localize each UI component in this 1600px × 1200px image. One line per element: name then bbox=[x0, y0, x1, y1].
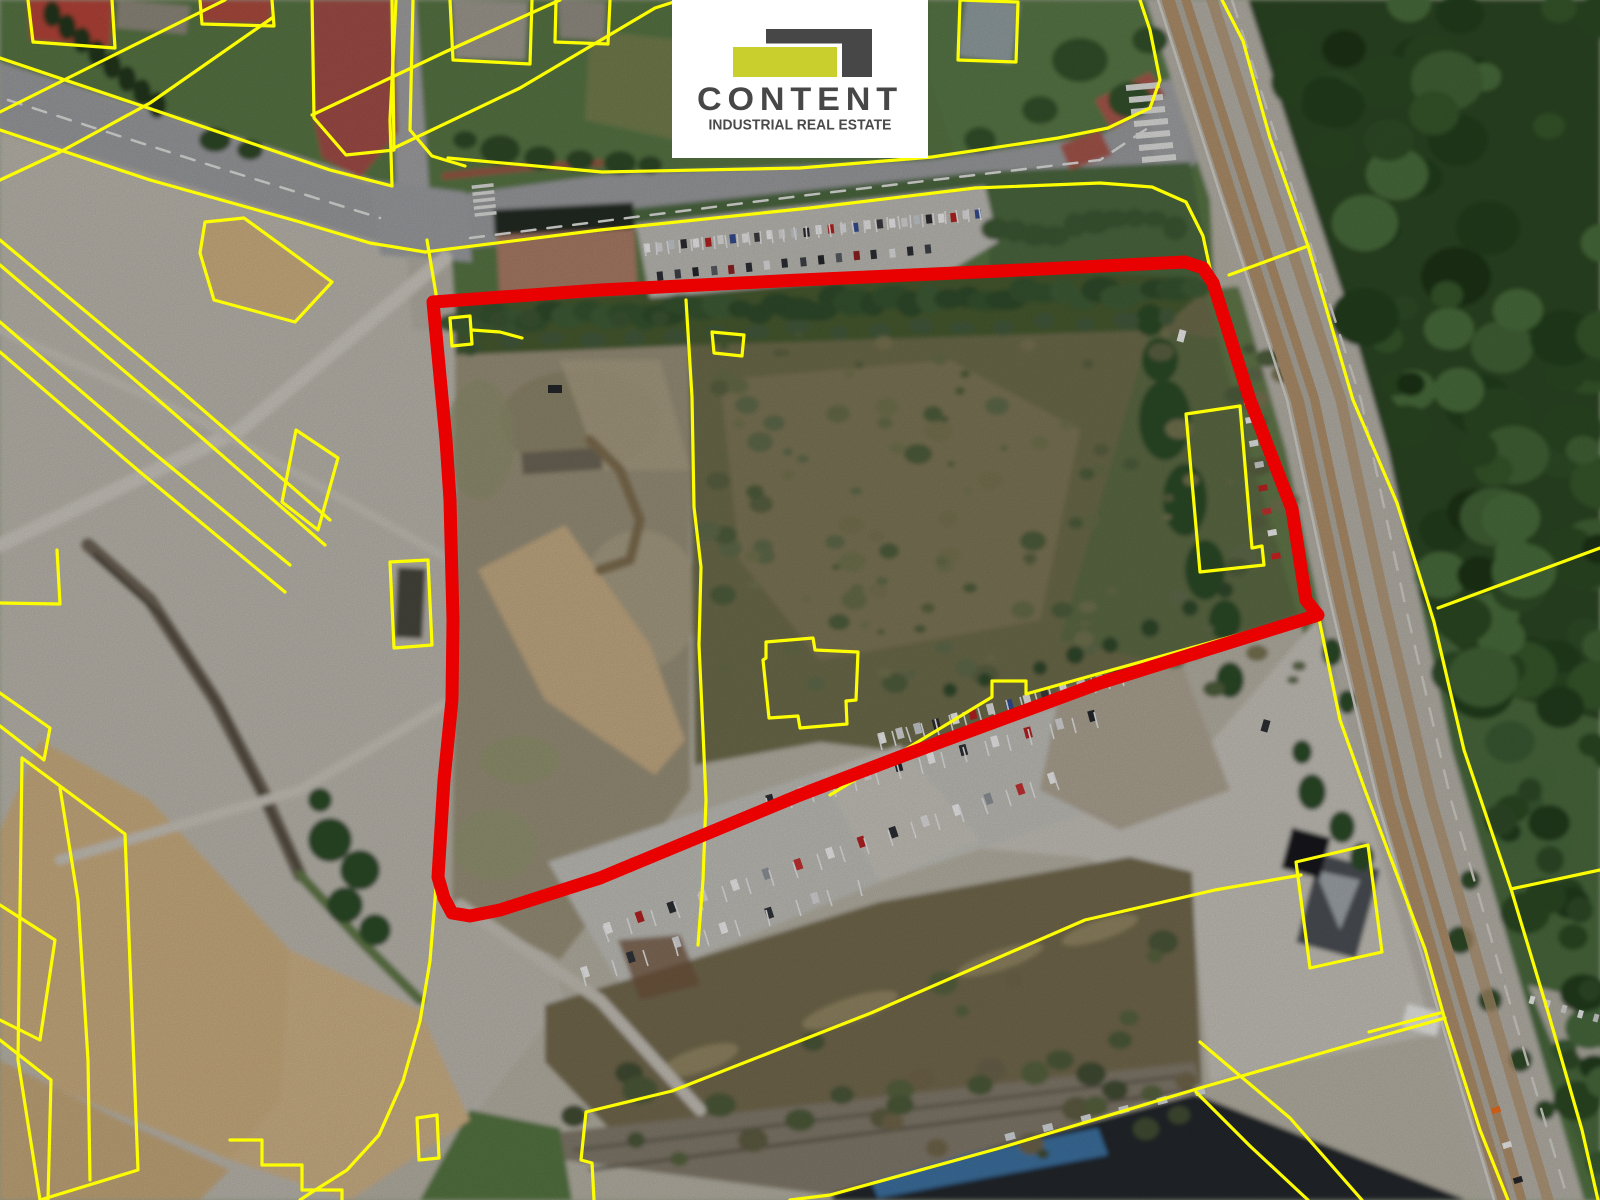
svg-text:INDUSTRIAL REAL ESTATE: INDUSTRIAL REAL ESTATE bbox=[709, 117, 892, 134]
svg-text:CONTENT: CONTENT bbox=[697, 81, 903, 117]
